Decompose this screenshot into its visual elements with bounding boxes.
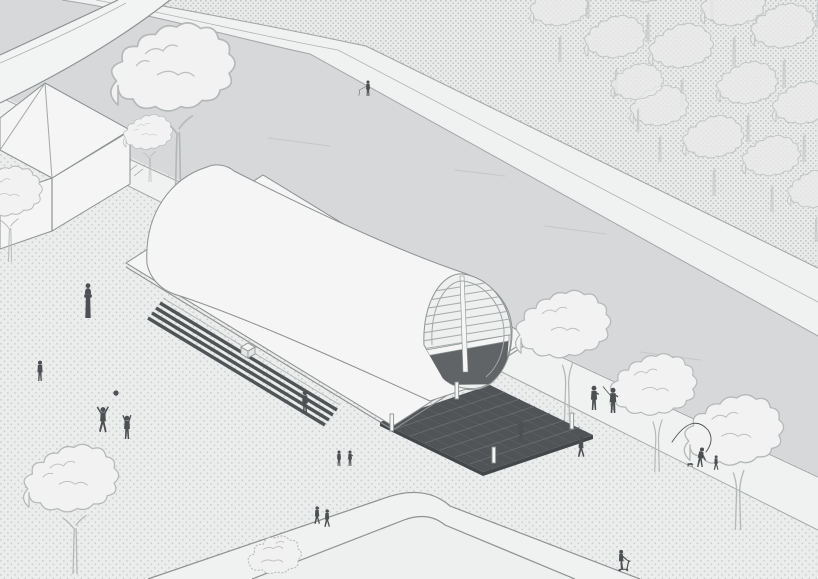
illustration-stage	[0, 0, 818, 579]
prop-volleyball	[113, 390, 118, 395]
site-illustration	[0, 0, 818, 579]
